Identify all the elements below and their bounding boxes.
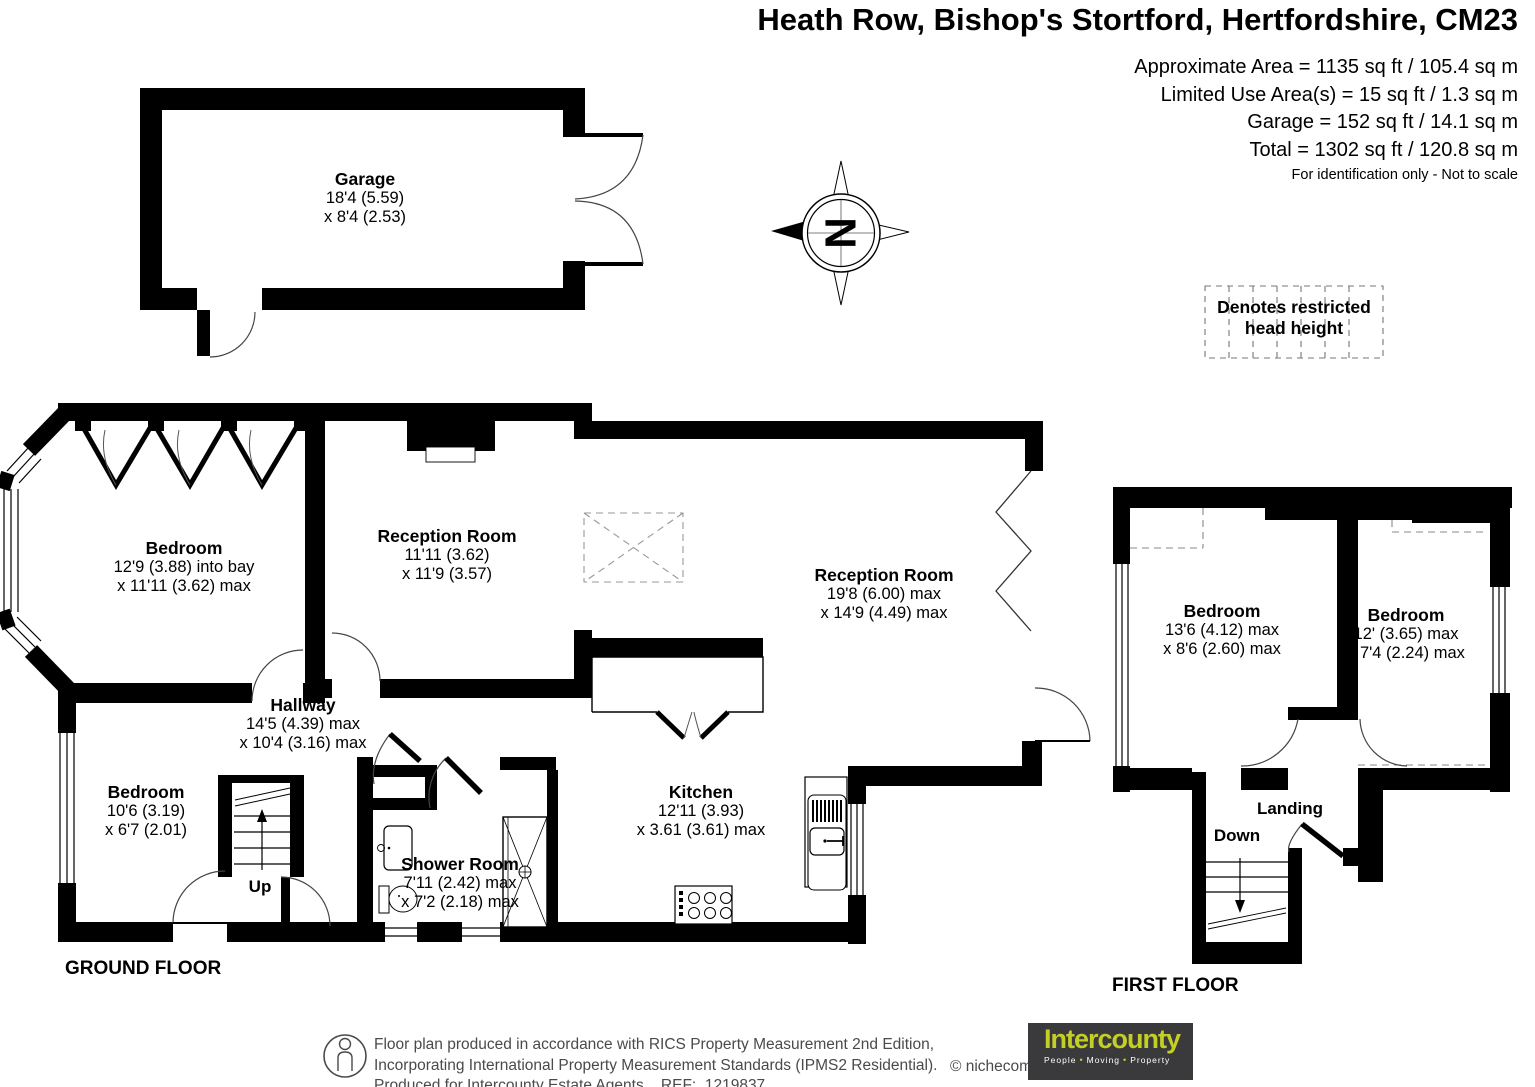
room-label-shower-room: Shower Room 7'11 (2.42) max x 7'2 (2.18)… bbox=[401, 855, 519, 912]
room-label-bedroom-ff-left: Bedroom 13'6 (4.12) max x 8'6 (2.60) max bbox=[1163, 602, 1281, 659]
legend-line-2: head height bbox=[1217, 318, 1371, 339]
room-dim: 12'11 (3.93) bbox=[637, 802, 765, 821]
legend-restricted-label: Denotes restricted head height bbox=[1217, 297, 1371, 339]
stairs-down-icon bbox=[1206, 858, 1288, 929]
ground-floor-plan bbox=[3, 403, 1090, 944]
room-label-garage: Garage 18'4 (5.59) x 8'4 (2.53) bbox=[324, 170, 406, 227]
room-name: Kitchen bbox=[637, 783, 765, 802]
footer-disclaimer-line-2: Incorporating International Property Mea… bbox=[374, 1057, 937, 1075]
room-dim: x 14'9 (4.49) max bbox=[814, 604, 953, 623]
page-title: Heath Row, Bishop's Stortford, Hertfords… bbox=[757, 2, 1518, 38]
room-label-hallway: Hallway 14'5 (4.39) max x 10'4 (3.16) ma… bbox=[240, 696, 367, 753]
restricted-area-dashed-box bbox=[584, 513, 683, 582]
room-dim: x 7'2 (2.18) max bbox=[401, 893, 519, 912]
person-icon bbox=[324, 1035, 366, 1077]
room-name: Bedroom bbox=[1347, 606, 1465, 625]
area-summary: Approximate Area = 1135 sq ft / 105.4 sq… bbox=[1134, 54, 1518, 164]
room-name: Hallway bbox=[240, 696, 367, 715]
room-label-bedroom-bay: Bedroom 12'9 (3.88) into bay x 11'11 (3.… bbox=[114, 539, 255, 596]
room-dim: 13'6 (4.12) max bbox=[1163, 621, 1281, 640]
logo-tag-bullet: • bbox=[1076, 1055, 1086, 1065]
room-name: Bedroom bbox=[105, 783, 187, 802]
room-label-bedroom-ff-right: Bedroom 12' (3.65) max x 7'4 (2.24) max bbox=[1347, 606, 1465, 663]
room-dim: x 11'11 (3.62) max bbox=[114, 577, 255, 596]
room-dim: 12' (3.65) max bbox=[1347, 625, 1465, 644]
room-dim: 18'4 (5.59) bbox=[324, 189, 406, 208]
intercounty-logo: Intercounty People•Moving•Property bbox=[1028, 1023, 1193, 1080]
ground-floor-label: GROUND FLOOR bbox=[65, 958, 221, 980]
ff-window-glazing-lines bbox=[1116, 564, 1505, 766]
room-dim: x 8'4 (2.53) bbox=[324, 208, 406, 227]
hob-icon bbox=[675, 886, 732, 924]
room-dim: 19'8 (6.00) max bbox=[814, 585, 953, 604]
room-name: Bedroom bbox=[1163, 602, 1281, 621]
footer-disclaimer-line-1: Floor plan produced in accordance with R… bbox=[374, 1036, 934, 1054]
logo-tag-bullet: • bbox=[1120, 1055, 1130, 1065]
room-dim: 10'6 (3.19) bbox=[105, 802, 187, 821]
compass-north-letter: N bbox=[817, 217, 866, 249]
room-dim: x 7'4 (2.24) max bbox=[1347, 644, 1465, 663]
logo-tagline: People•Moving•Property bbox=[1044, 1055, 1193, 1065]
stairs-down-label: Down bbox=[1214, 826, 1260, 846]
floorplan-page: N bbox=[0, 0, 1535, 1087]
logo-tag-word: People bbox=[1044, 1055, 1076, 1065]
legend-line-1: Denotes restricted bbox=[1217, 297, 1371, 318]
garage-door-icon bbox=[567, 135, 643, 264]
room-label-bedroom-small: Bedroom 10'6 (3.19) x 6'7 (2.01) bbox=[105, 783, 187, 840]
room-name: Reception Room bbox=[814, 566, 953, 585]
footer-disclaimer-line-3: Produced for Intercounty Estate Agents. … bbox=[374, 1077, 765, 1087]
room-label-reception-2: Reception Room 19'8 (6.00) max x 14'9 (4… bbox=[814, 566, 953, 623]
room-name: Reception Room bbox=[377, 527, 516, 546]
room-dim: 12'9 (3.88) into bay bbox=[114, 558, 255, 577]
total-area: Total = 1302 sq ft / 120.8 sq m bbox=[1134, 137, 1518, 165]
room-dim: 11'11 (3.62) bbox=[377, 546, 516, 565]
stairs-up-label: Up bbox=[249, 877, 272, 897]
logo-tag-word: Property bbox=[1130, 1055, 1170, 1065]
room-label-landing: Landing bbox=[1257, 799, 1323, 819]
stairs-up-icon bbox=[234, 788, 290, 870]
garage-side-door-arc-icon bbox=[210, 312, 255, 357]
compass-icon: N bbox=[771, 161, 909, 305]
room-dim: x 11'9 (3.57) bbox=[377, 565, 516, 584]
kitchen-counter-sink-icon bbox=[805, 777, 847, 890]
first-floor-label: FIRST FLOOR bbox=[1112, 975, 1239, 997]
ff-door-leaf bbox=[1302, 824, 1343, 856]
room-label-kitchen: Kitchen 12'11 (3.93) x 3.61 (3.61) max bbox=[637, 783, 765, 840]
garage-area: Garage = 152 sq ft / 14.1 sq m bbox=[1134, 109, 1518, 137]
bedroom-zigzag-wardrobe-icon bbox=[75, 421, 305, 485]
fireplace-recess bbox=[426, 447, 475, 462]
room-dim: 7'11 (2.42) max bbox=[401, 874, 519, 893]
room-dim: 14'5 (4.39) max bbox=[240, 715, 367, 734]
logo-brand-text: Intercounty bbox=[1044, 1023, 1193, 1056]
room-dim: x 6'7 (2.01) bbox=[105, 821, 187, 840]
room-dim: x 10'4 (3.16) max bbox=[240, 734, 367, 753]
open-plan-zigzag bbox=[996, 471, 1031, 631]
counter-double-doors-icon bbox=[592, 657, 763, 738]
first-floor-plan bbox=[1113, 487, 1512, 964]
room-dim: x 8'6 (2.60) max bbox=[1163, 640, 1281, 659]
bay-window-icon bbox=[3, 412, 68, 689]
limited-use-area: Limited Use Area(s) = 15 sq ft / 1.3 sq … bbox=[1134, 82, 1518, 110]
room-name: Bedroom bbox=[114, 539, 255, 558]
not-to-scale-note: For identification only - Not to scale bbox=[1292, 167, 1518, 183]
room-dim: x 3.61 (3.61) max bbox=[637, 821, 765, 840]
room-name: Shower Room bbox=[401, 855, 519, 874]
room-label-reception-1: Reception Room 11'11 (3.62) x 11'9 (3.57… bbox=[377, 527, 516, 584]
room-name: Garage bbox=[324, 170, 406, 189]
logo-tag-word: Moving bbox=[1087, 1055, 1120, 1065]
approximate-area: Approximate Area = 1135 sq ft / 105.4 sq… bbox=[1134, 54, 1518, 82]
